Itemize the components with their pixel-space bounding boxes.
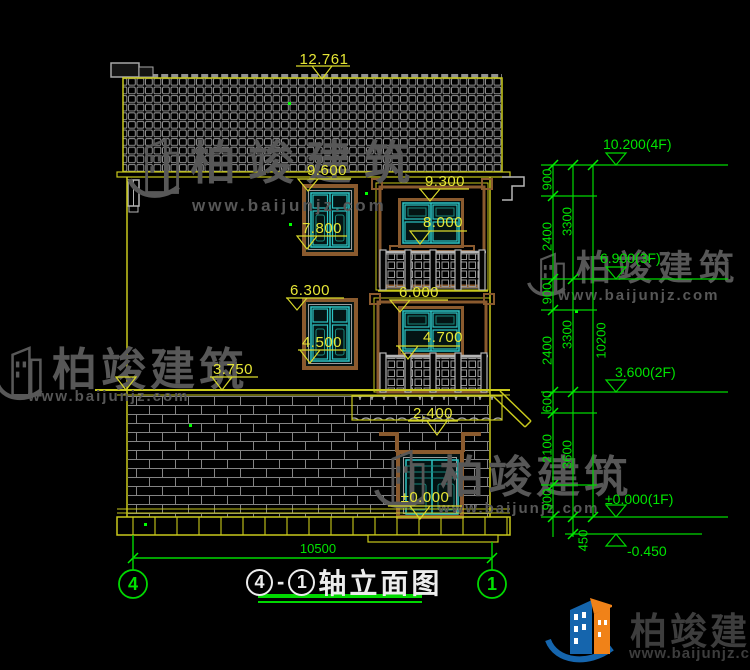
chain-seg: 3300 — [560, 190, 575, 254]
win2f-head-label: 6.300 — [285, 282, 335, 299]
bay3f-head-label: 9.300 — [420, 173, 470, 190]
win2f-sill-label: 4.500 — [297, 334, 347, 351]
title-axis-left: 4 — [246, 569, 273, 596]
axis-number-1: 1 — [477, 574, 507, 595]
level-2f-label: 3.600(2F) — [615, 364, 676, 380]
title-axis-right: 1 — [288, 569, 315, 596]
total-width-label: 10500 — [287, 541, 349, 556]
chain-seg: 900 — [540, 148, 555, 212]
chain-seg: 900 — [540, 468, 555, 532]
footer-site: www.baijunjz.com — [629, 645, 750, 662]
cad-elevation-drawing: 柏竣建筑 www.baijunjz.com 柏竣建筑 www.baijunjz.… — [0, 0, 750, 670]
chain-seg: 3600 — [560, 423, 575, 487]
title-dash: - — [277, 569, 284, 595]
chain-seg: 3300 — [560, 303, 575, 367]
title-text: 轴立面图 — [318, 562, 442, 602]
level-1f-label: ±0.000(1F) — [605, 491, 673, 507]
bay2f-sill-label: 4.700 — [414, 329, 472, 346]
dimension-ticks — [128, 160, 598, 563]
level-3f-label: 6.900(3F) — [600, 250, 661, 266]
ridge-elevation-label: 12.761 — [296, 51, 352, 68]
floor2-label: 3.750 — [208, 361, 258, 378]
entry-level-label: ±0.000 — [386, 489, 464, 506]
chain-total: 10200 — [594, 309, 609, 373]
win3f-sill-label: 7.800 — [298, 220, 346, 237]
canopy-eave-label: 2.400 — [407, 405, 459, 422]
chain-seg-basement: 450 — [576, 509, 591, 573]
bay2f-head-label: 6.000 — [391, 284, 447, 301]
axis-number-4: 4 — [118, 574, 148, 595]
level-4f-label: 10.200(4F) — [603, 136, 671, 152]
win3f-head-label: 9.600 — [303, 162, 351, 179]
bay3f-sill-label: 8.000 — [418, 214, 468, 231]
footer-logo-icon — [540, 592, 628, 666]
drawing-title: 4 - 1 轴立面图 — [246, 562, 442, 602]
chain-seg: 2400 — [540, 205, 555, 269]
chain-seg: 900 — [540, 262, 555, 326]
level-basement-label: -0.450 — [627, 543, 667, 559]
